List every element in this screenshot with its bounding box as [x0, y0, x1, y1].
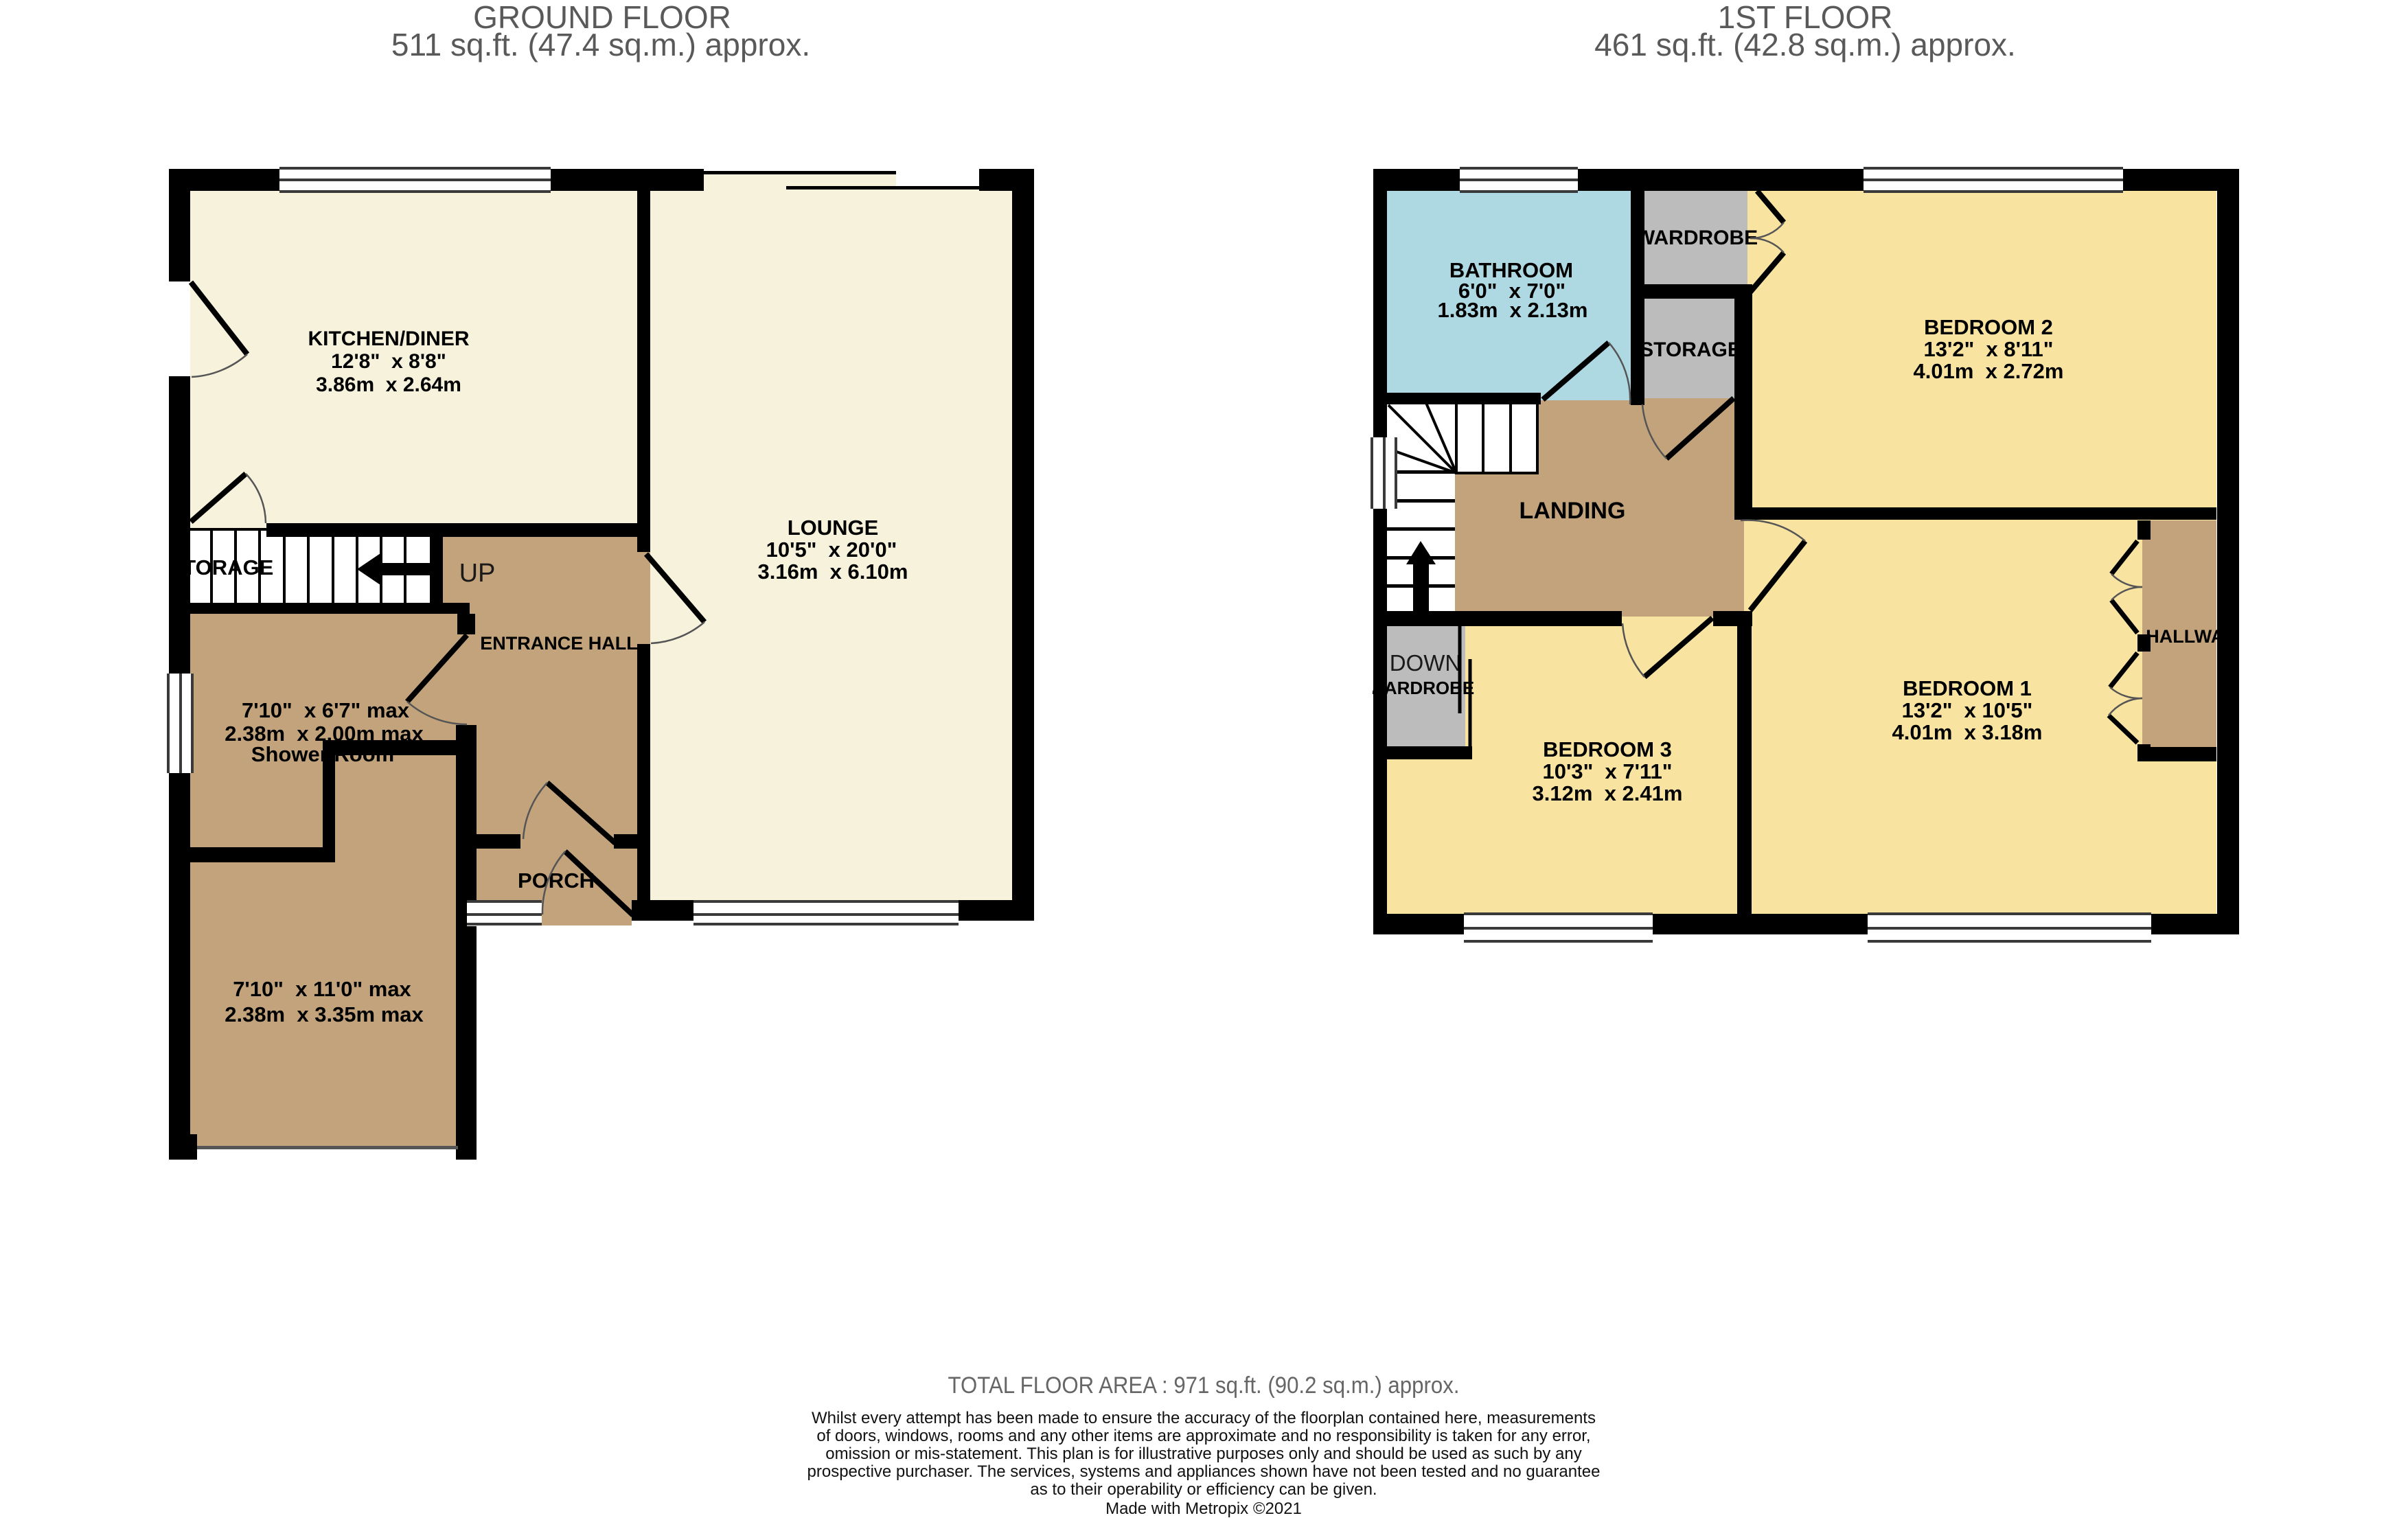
svg-text:4.01m x 3.18m: 4.01m x 3.18m — [1892, 720, 2043, 744]
svg-text:3.16m x 6.10m: 3.16m x 6.10m — [758, 560, 908, 584]
svg-text:12'8" x 8'8": 12'8" x 8'8" — [331, 350, 446, 373]
svg-text:7'10" x 11'0" max: 7'10" x 11'0" max — [233, 977, 411, 1001]
svg-text:4.01m x 2.72m: 4.01m x 2.72m — [1914, 359, 2064, 383]
svg-text:ENTRANCE HALL: ENTRANCE HALL — [480, 633, 638, 654]
svg-text:BEDROOM 3: BEDROOM 3 — [1543, 737, 1672, 761]
svg-text:TOTAL FLOOR AREA : 971 sq.ft.: TOTAL FLOOR AREA : 971 sq.ft. (90.2 sq.m… — [948, 1372, 1460, 1399]
svg-text:13'2" x 10'5": 13'2" x 10'5" — [1902, 698, 2033, 722]
svg-text:as to their operability or eff: as to their operability or efficiency ca… — [1030, 1480, 1377, 1499]
svg-text:13'2" x 8'11": 13'2" x 8'11" — [1924, 337, 2054, 361]
svg-text:KITCHEN/DINER: KITCHEN/DINER — [308, 327, 469, 350]
svg-text:7'10" x 6'7" max: 7'10" x 6'7" max — [242, 698, 410, 722]
svg-text:2.38m x 3.35m max: 2.38m x 3.35m max — [225, 1002, 424, 1026]
svg-text:3.12m x 2.41m: 3.12m x 2.41m — [1533, 781, 1683, 805]
svg-text:1.83m x 2.13m: 1.83m x 2.13m — [1438, 298, 1588, 322]
svg-text:3.86m x 2.64m: 3.86m x 2.64m — [316, 373, 461, 396]
svg-text:511 sq.ft. (47.4 sq.m.) approx: 511 sq.ft. (47.4 sq.m.) approx. — [391, 27, 810, 62]
svg-text:WARDROBE: WARDROBE — [1636, 227, 1758, 249]
svg-text:10'3" x 7'11": 10'3" x 7'11" — [1543, 759, 1673, 783]
svg-text:BEDROOM 1: BEDROOM 1 — [1903, 676, 2032, 700]
svg-text:prospective purchaser. The ser: prospective purchaser. The services, sys… — [807, 1462, 1601, 1481]
svg-text:461 sq.ft. (42.8 sq.m.) approx: 461 sq.ft. (42.8 sq.m.) approx. — [1594, 27, 2016, 62]
svg-text:LOUNGE: LOUNGE — [788, 516, 879, 540]
svg-text:STORAGE: STORAGE — [1640, 338, 1741, 361]
svg-text:UP: UP — [459, 559, 496, 588]
svg-text:10'5" x 20'0": 10'5" x 20'0" — [766, 538, 897, 562]
svg-text:Made with Metropix ©2021: Made with Metropix ©2021 — [1105, 1499, 1302, 1518]
svg-text:LANDING: LANDING — [1520, 498, 1626, 524]
svg-text:of doors, windows, rooms and a: of doors, windows, rooms and any other i… — [816, 1427, 1590, 1445]
svg-text:DOWN: DOWN — [1390, 650, 1461, 676]
svg-text:omission or mis-statement. Thi: omission or mis-statement. This plan is … — [825, 1445, 1581, 1463]
svg-text:Whilst every attempt has been: Whilst every attempt has been made to en… — [812, 1409, 1596, 1427]
svg-text:BEDROOM 2: BEDROOM 2 — [1924, 315, 2053, 339]
svg-text:PORCH: PORCH — [518, 869, 595, 893]
